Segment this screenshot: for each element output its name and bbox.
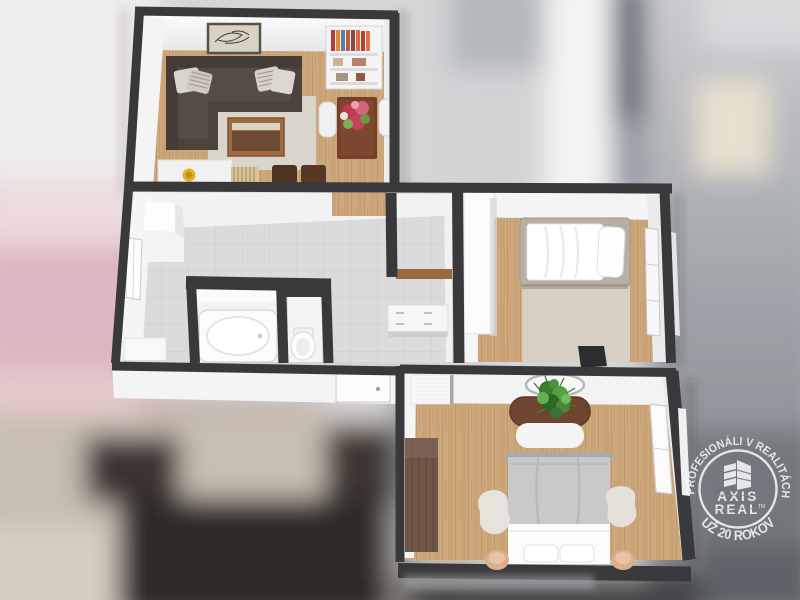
svg-text:REAL: REAL [715, 502, 760, 517]
svg-text:TM: TM [758, 504, 765, 510]
